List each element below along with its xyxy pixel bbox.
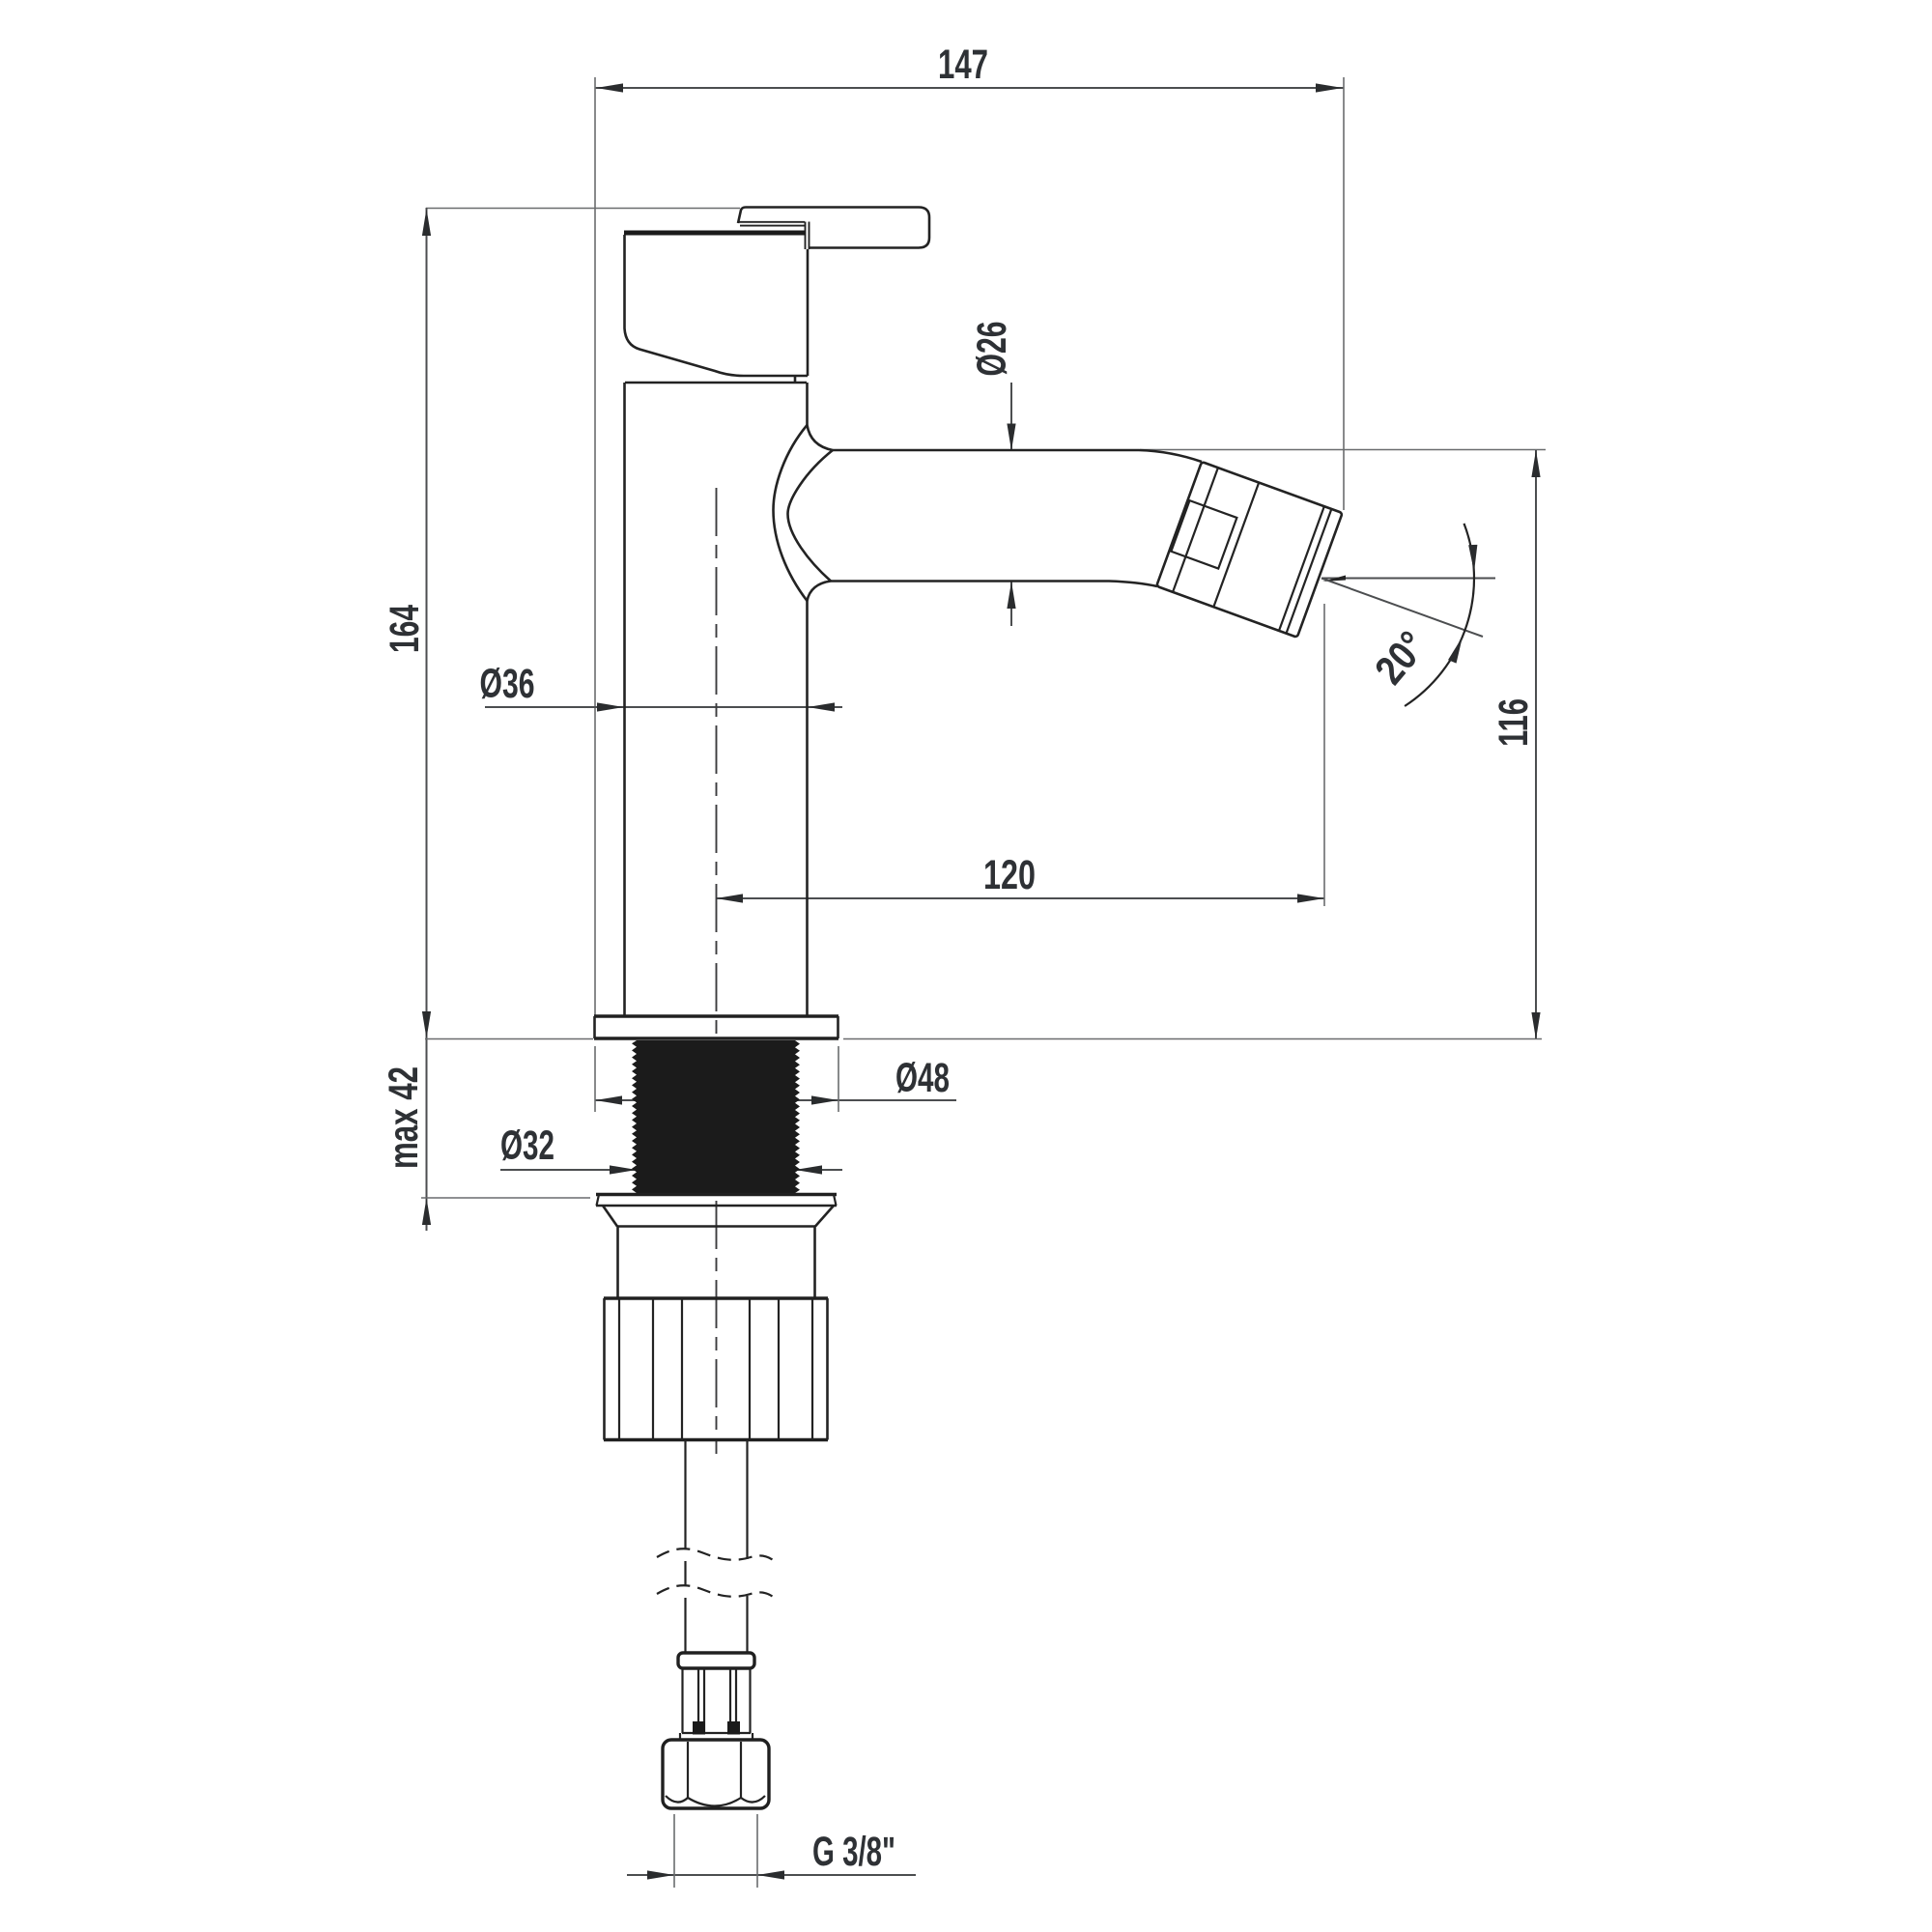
svg-text:164: 164: [383, 605, 428, 653]
svg-text:Ø32: Ø32: [500, 1123, 554, 1169]
svg-text:Ø36: Ø36: [480, 662, 535, 707]
svg-text:120: 120: [983, 853, 1036, 898]
svg-text:G 3/8": G 3/8": [812, 1830, 895, 1875]
svg-text:max 42: max 42: [382, 1066, 427, 1169]
svg-text:116: 116: [1492, 698, 1537, 747]
svg-text:147: 147: [938, 43, 988, 88]
svg-text:Ø26: Ø26: [970, 322, 1015, 377]
svg-text:Ø48: Ø48: [895, 1056, 950, 1101]
